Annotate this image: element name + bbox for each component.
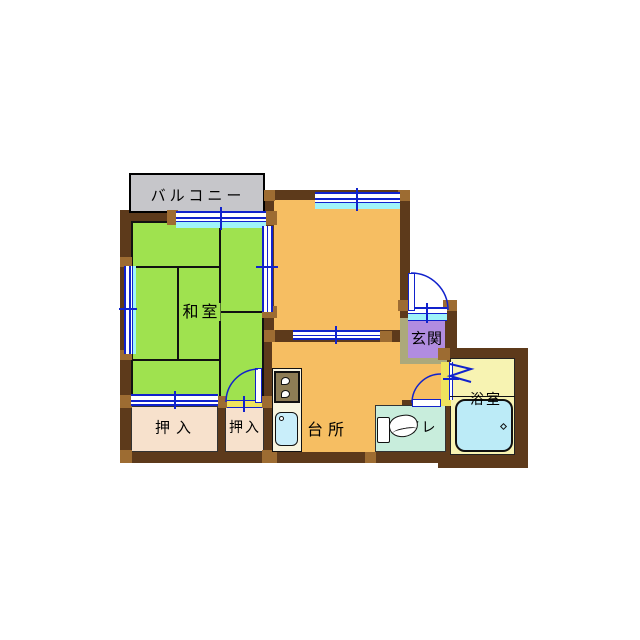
faucet-dot (279, 416, 284, 421)
stove-icon (274, 371, 300, 403)
door-tick (174, 391, 176, 409)
door-tick (335, 326, 337, 344)
stove-burner (281, 377, 290, 385)
washitsu-door-arc (226, 369, 258, 402)
label-bathroom: 浴室 (470, 393, 502, 407)
toilet-door-arc (412, 374, 441, 403)
label-balcony: バルコニー (151, 189, 246, 204)
door-tick (443, 378, 459, 380)
window-tick (220, 207, 222, 230)
toilet-bowl-icon (377, 417, 390, 443)
window-tick (356, 188, 358, 211)
floorplan: バルコニー 和室 台所 玄関 押入 押入 トイレ 浴室 (0, 0, 640, 640)
label-washitsu: 和室 (179, 303, 220, 321)
label-closet-left: 押入 (149, 421, 197, 436)
window-tick (119, 308, 137, 310)
label-closet-right: 押入 (229, 421, 261, 435)
door-arcs-overlay (0, 0, 640, 640)
entrance-door-arc (411, 273, 448, 310)
kitchen-sink-icon (275, 412, 298, 446)
door-tick (426, 303, 428, 323)
drain-dot (500, 423, 507, 430)
stove-burner (281, 390, 290, 398)
label-genkan: 玄関 (411, 332, 443, 347)
door-tick (243, 396, 245, 412)
door-tick (256, 266, 278, 268)
label-kitchen: 台所 (307, 422, 349, 438)
